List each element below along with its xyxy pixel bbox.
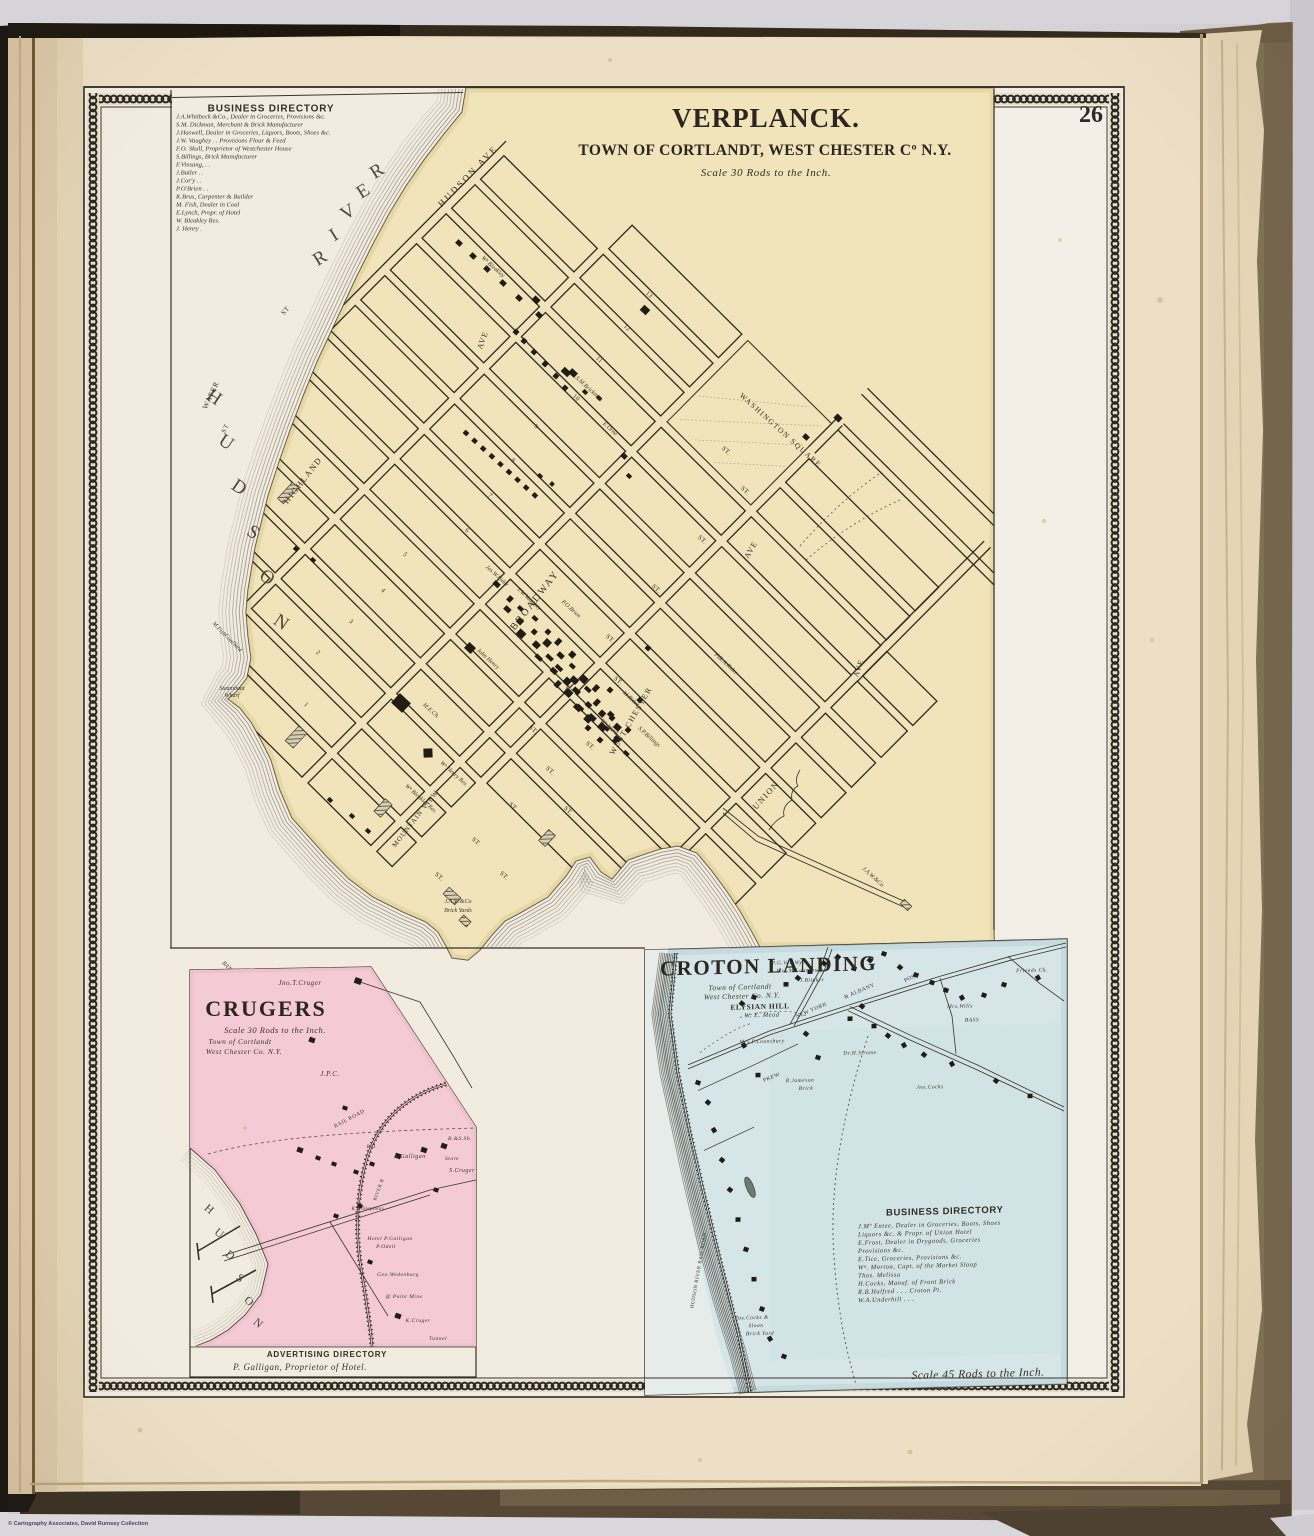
svg-text:© Cartography Associates, Davi: © Cartography Associates, David Rumsey C…: [8, 1520, 149, 1527]
